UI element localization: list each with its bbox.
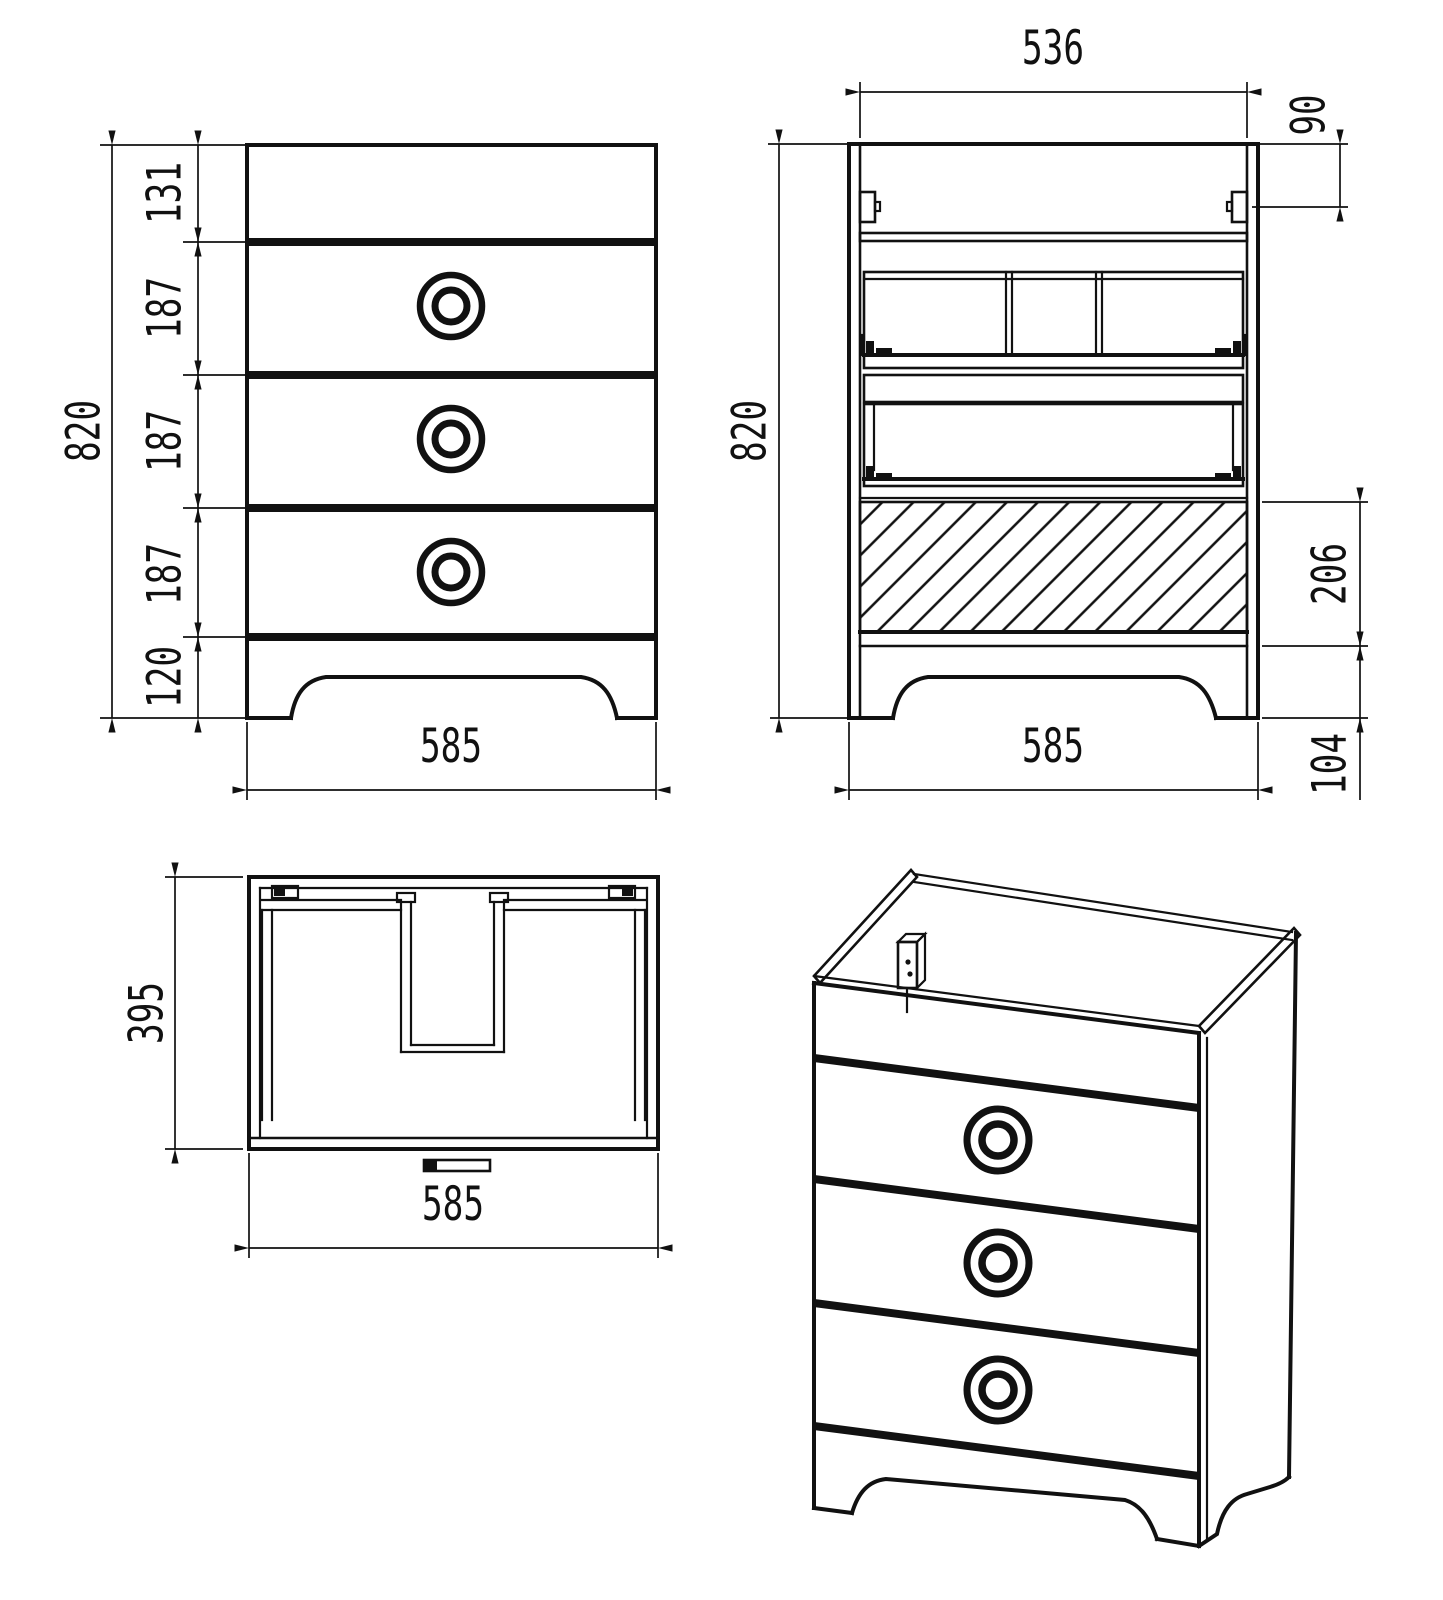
dim-label-front-seg-drawer2: 187 [138, 410, 193, 472]
dim-label-front-seg-drawer3: 187 [138, 543, 193, 605]
technical-drawing-page: 820 131 187 187 187 120 585 [0, 0, 1443, 1600]
dim-label-back-hanger-offset: 90 [1282, 95, 1337, 136]
dim-label-back-plinth-zone: 206 [1303, 543, 1358, 605]
dim-label-front-seg-drawer1: 187 [138, 277, 193, 339]
drawing-canvas: 820 131 187 187 187 120 585 [0, 0, 1443, 1600]
dim-label-front-seg-base: 120 [138, 646, 193, 708]
dim-label-front-seg-top: 131 [138, 162, 193, 224]
hatched-panel [860, 502, 1247, 632]
dim-label-plan-width: 585 [422, 1177, 484, 1232]
dim-label-plan-depth: 395 [120, 982, 175, 1044]
dim-label-front-width: 585 [420, 719, 482, 774]
dim-label-back-inner-width: 536 [1022, 21, 1084, 76]
dim-label-back-foot-height: 104 [1303, 733, 1358, 795]
dim-label-back-total-height: 820 [723, 400, 778, 462]
dim-label-front-total-height: 820 [57, 400, 112, 462]
dim-label-back-width: 585 [1022, 719, 1084, 774]
